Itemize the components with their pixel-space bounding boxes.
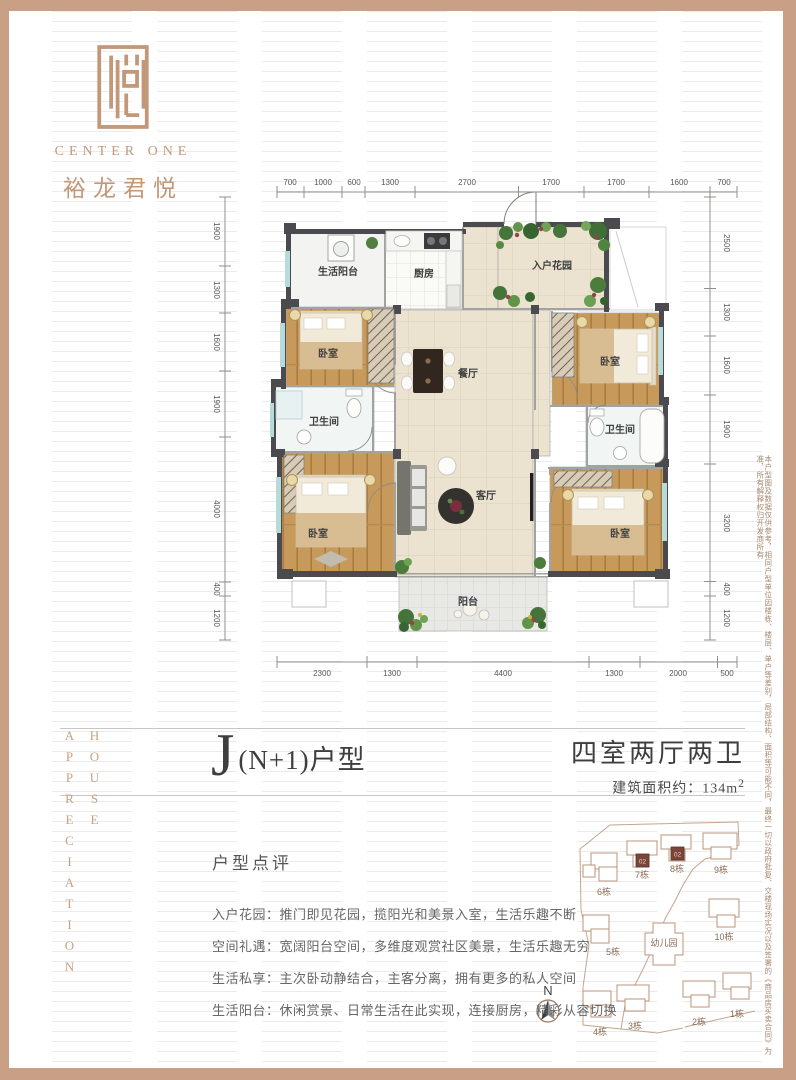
site-label-8: 8栋 (670, 863, 684, 874)
dim-top-4: 2700 (458, 178, 476, 187)
room-entry-corridor (463, 227, 498, 310)
dim-top-6: 1700 (607, 178, 625, 187)
dim-right-4: 3200 (722, 514, 731, 532)
review-item: 入户花园：推门即见花园，揽阳光和美景入室，生活乐趣不断 (212, 904, 617, 936)
dim-top-3: 1300 (381, 178, 399, 187)
basin (614, 447, 627, 460)
site-label-3: 3栋 (628, 1020, 642, 1031)
label-bedroom: 卧室 (318, 347, 338, 360)
dim-bottom-5: 500 (720, 669, 734, 678)
dim-top-2: 600 (347, 178, 361, 187)
unit-area-value: 134m (702, 782, 738, 797)
entry-door (504, 192, 536, 224)
unit-area-label: 建筑面积约： (612, 782, 702, 797)
dim-right-0: 2500 (722, 234, 731, 252)
dim-top-5: 1700 (542, 178, 560, 187)
unit-area: 建筑面积约：134m2 (571, 777, 745, 798)
label-bathroom: 卫生间 (605, 423, 635, 436)
vertical-word-appreciation: APPRECIATION (61, 728, 77, 980)
site-label-6: 6栋 (597, 886, 611, 897)
fridge (447, 285, 460, 307)
dim-right-5: 400 (722, 582, 731, 596)
dim-left-2: 1600 (212, 333, 221, 351)
bathtub (640, 409, 664, 463)
brand-name-cn: 裕龙君悦 (47, 169, 199, 203)
basin (297, 430, 311, 444)
label-bedroom: 卧室 (600, 355, 620, 368)
dim-bottom-3: 1300 (605, 669, 623, 678)
logo-mark-icon (96, 43, 150, 131)
label-bedroom: 卧室 (610, 527, 630, 540)
label-living: 客厅 (475, 489, 496, 502)
dim-left-6: 1200 (212, 609, 221, 627)
highlight-unit-number: 02 (639, 859, 647, 866)
label-life-balcony: 生活阳台 (318, 265, 358, 278)
disclaimer-text: 本户型图及数据仅供参考，相同户型单位因楼栋、楼层、单户等差别，局部结构、面积等可… (756, 455, 772, 1063)
review-heading: 户型点评 (212, 849, 292, 874)
label-bathroom: 卫生间 (309, 415, 339, 428)
dim-right-2: 1600 (722, 356, 731, 374)
toilet (590, 418, 604, 436)
unit-layout: 四室两厅两卫 (571, 733, 745, 770)
armchair (438, 457, 456, 475)
sofa-back (397, 461, 411, 535)
dim-right-6: 1200 (722, 609, 731, 627)
site-label-kindergarten: 幼儿园 (650, 937, 677, 948)
dim-right-3: 1900 (722, 420, 731, 438)
unit-summary: 四室两厅两卫 建筑面积约：134m2 (571, 733, 745, 798)
site-label-10: 10栋 (714, 931, 733, 942)
dim-top-0: 700 (283, 178, 297, 187)
site-label-1: 1栋 (730, 1008, 744, 1019)
label-bedroom: 卧室 (308, 527, 328, 540)
brand-logo: CENTER ONE 裕龙君悦 (47, 43, 199, 203)
tv (530, 473, 534, 521)
unit-title: J(N+1)户型 (211, 725, 366, 785)
title-rule-top (60, 728, 745, 729)
dim-left-4: 4000 (212, 500, 221, 518)
side-vertical-words: APPRECIATION HOUSE (61, 728, 102, 980)
dim-right-1: 1300 (722, 303, 731, 321)
vertical-word-house: HOUSE (86, 728, 102, 980)
dim-top-8: 700 (717, 178, 731, 187)
dim-bottom-0: 2300 (313, 669, 331, 678)
review-item: 生活私享：主次卧动静结合，主客分离，拥有更多的私人空间 (212, 968, 617, 1000)
site-label-9: 9栋 (714, 864, 728, 875)
label-entry-garden: 入户花园 (532, 259, 572, 272)
label-dining: 餐厅 (457, 367, 478, 380)
toilet (347, 399, 361, 418)
review-item: 空间礼遇：宽阔阳台空间，多维度观赏社区美景，生活乐趣无穷 (212, 936, 617, 968)
wardrobe (552, 313, 574, 377)
dim-bottom-1: 1300 (383, 669, 401, 678)
wardrobe (554, 471, 612, 487)
dim-left-5: 400 (212, 582, 221, 596)
dim-bottom-4: 2000 (669, 669, 687, 678)
review-item: 生活阳台：休闲赏景、日常生活在此实现，连接厨房，精彩从容切换 (212, 1000, 617, 1032)
brand-name-en: CENTER ONE (47, 144, 199, 160)
review-list: 入户花园：推门即见花园，揽阳光和美景入室，生活乐趣不断 空间礼遇：宽阔阳台空间，… (212, 904, 617, 1032)
site-label-7: 7栋 (635, 869, 649, 880)
label-kitchen: 厨房 (414, 267, 434, 280)
dim-top-1: 1000 (314, 178, 332, 187)
dim-left-0: 1900 (212, 222, 221, 240)
highlight-unit-number: 02 (674, 852, 682, 859)
dining-table (413, 349, 443, 393)
unit-title-suffix: (N+1)户型 (238, 745, 365, 775)
dim-top-7: 1600 (670, 178, 688, 187)
dim-left-1: 1300 (212, 281, 221, 299)
kitchen-sink (394, 236, 410, 247)
shower (276, 391, 302, 419)
dim-bottom-2: 4400 (494, 669, 512, 678)
site-label-2: 2栋 (692, 1016, 706, 1027)
unit-area-sup: 2 (738, 777, 745, 790)
floorplan: 生活阳台 厨房 入户花园 卧室 餐厅 卧室 卫生间 卫生间 客厅 卧室 卧室 阳… (200, 165, 760, 710)
unit-title-initial: J (211, 722, 234, 788)
wardrobe (368, 309, 394, 383)
label-balcony: 阳台 (458, 595, 478, 608)
poster-page: CENTER ONE 裕龙君悦 APPRECIATION HOUSE 本户型图及… (9, 11, 783, 1068)
dim-left-3: 1900 (212, 395, 221, 413)
